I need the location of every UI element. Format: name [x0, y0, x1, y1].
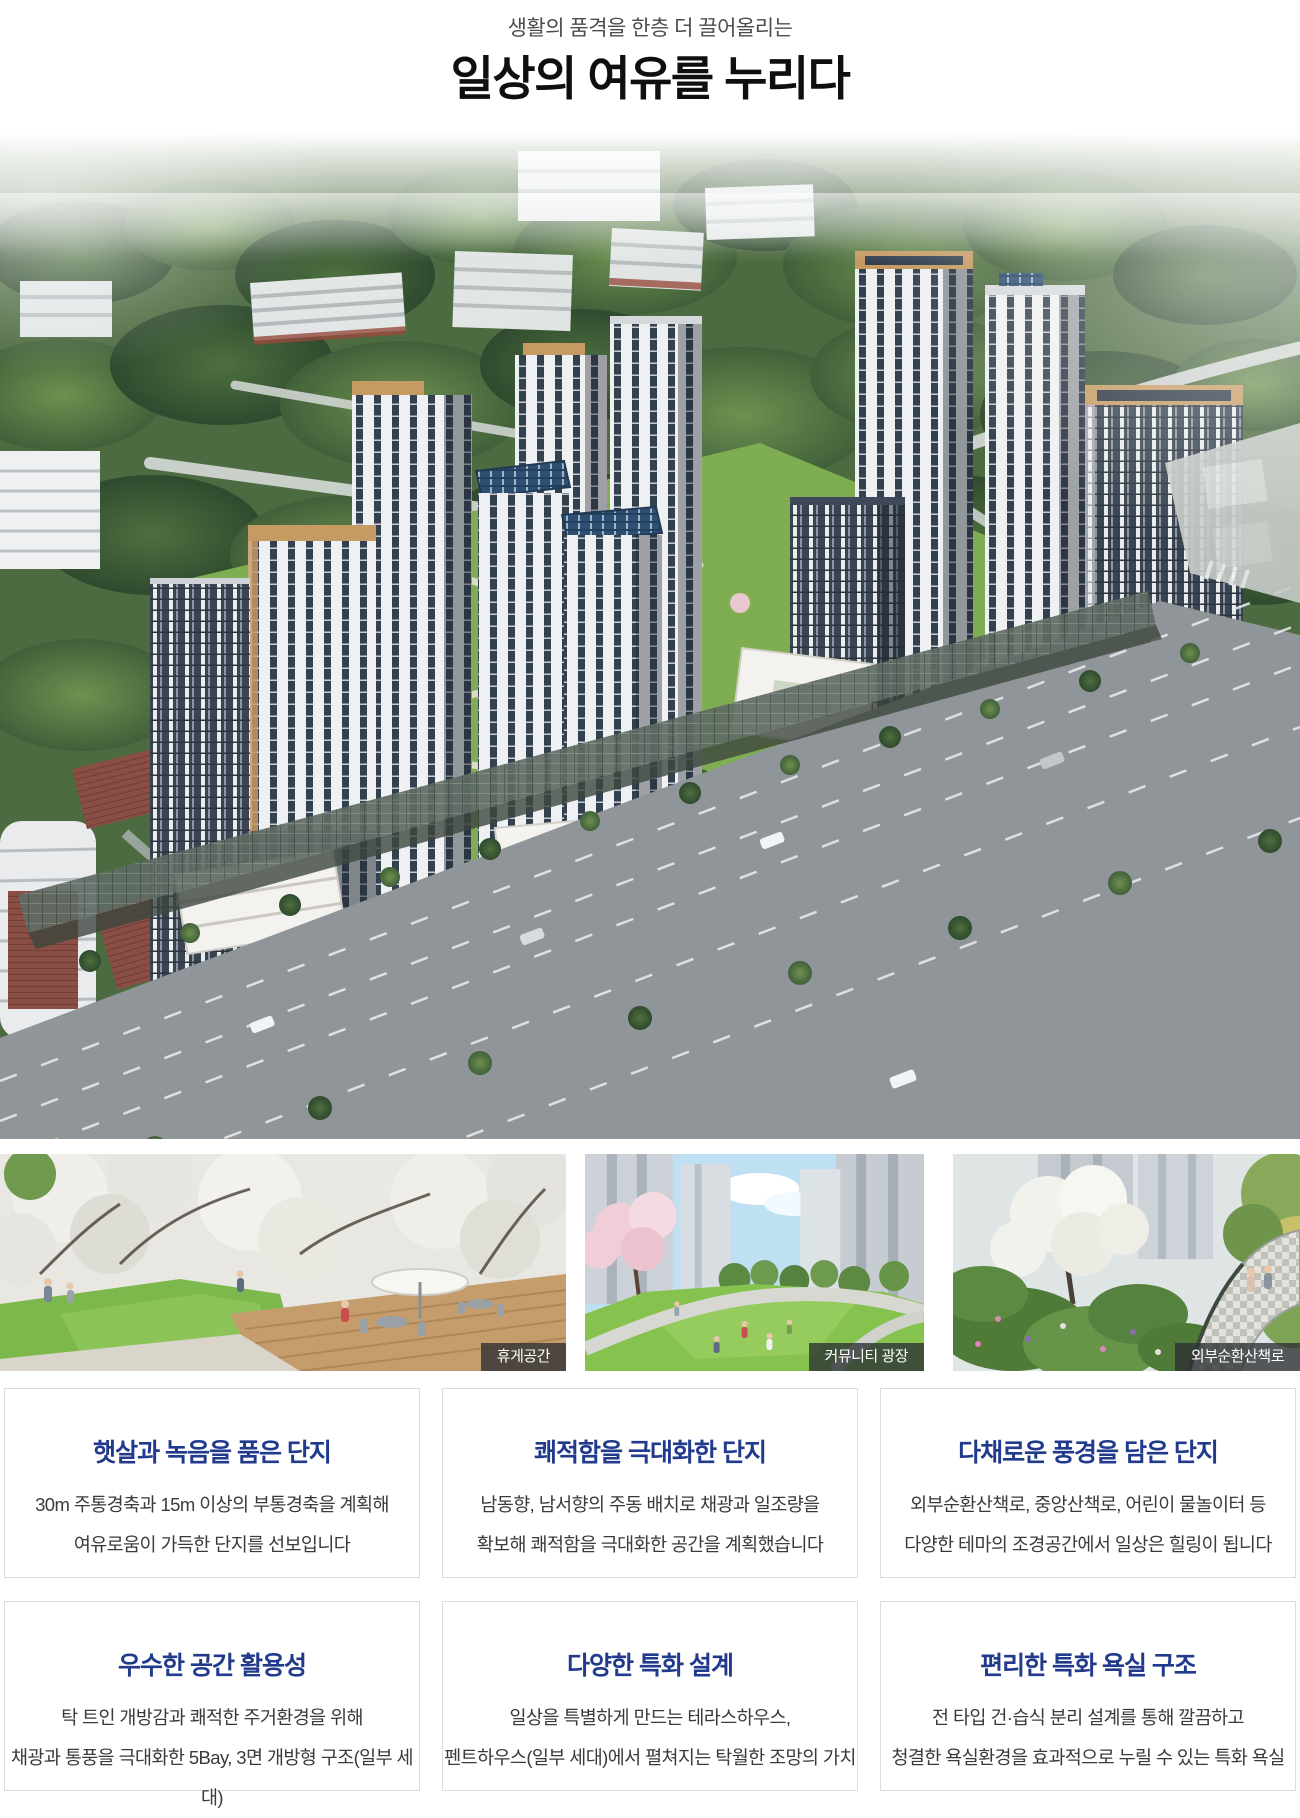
- feature-card-bathroom: 편리한 특화 욕실 구조 전 타입 건·습식 분리 설계를 통해 깔끔하고 청결…: [880, 1601, 1296, 1791]
- card-body-line: 외부순환산책로, 중앙산책로, 어린이 물놀이터 등: [881, 1485, 1295, 1525]
- card-body-line: 전 타입 건·습식 분리 설계를 통해 깔끔하고: [881, 1698, 1295, 1738]
- card-title: 햇살과 녹음을 품은 단지: [5, 1433, 419, 1469]
- card-body-line: 여유로움이 가득한 단지를 선보입니다: [5, 1525, 419, 1565]
- complex-aerial-view-image: [0, 133, 1300, 1139]
- card-title: 편리한 특화 욕실 구조: [881, 1646, 1295, 1682]
- thumbnail-label-badge: 커뮤니티 광장: [809, 1343, 924, 1371]
- card-body-line: 확보해 쾌적함을 극대화한 공간을 계획했습니다: [443, 1525, 857, 1565]
- thumbnail-label-badge: 외부순환산책로: [1175, 1343, 1300, 1371]
- feature-card-design: 다양한 특화 설계 일상을 특별하게 만드는 테라스하우스, 펜트하우스(일부 …: [442, 1601, 858, 1791]
- outer-trail-graphic: [953, 1154, 1300, 1371]
- thumbnail-rest-area: 휴게공간: [0, 1154, 566, 1371]
- card-body-line: 채광과 통풍을 극대화한 5Bay, 3면 개방형 구조(일부 세대): [5, 1738, 419, 1818]
- header-subtitle: 생활의 품격을 한층 더 끌어올리는: [0, 12, 1300, 42]
- page-header: 생활의 품격을 한층 더 끌어올리는 일상의 여유를 누리다: [0, 0, 1300, 133]
- promo-page: 생활의 품격을 한층 더 끌어올리는 일상의 여유를 누리다: [0, 0, 1300, 1791]
- thumbnail-community-plaza: 커뮤니티 광장: [585, 1154, 924, 1371]
- thumbnail-outer-trail: 외부순환산책로: [953, 1154, 1300, 1371]
- thumbnail-label-badge: 휴게공간: [481, 1343, 566, 1371]
- feature-card-sunlight: 햇살과 녹음을 품은 단지 30m 주통경축과 15m 이상의 부통경축을 계획…: [4, 1388, 420, 1578]
- feature-card-scenery: 다채로운 풍경을 담은 단지 외부순환산책로, 중앙산책로, 어린이 물놀이터 …: [880, 1388, 1296, 1578]
- aerial-render-graphic: [0, 133, 1300, 1139]
- card-body-line: 펜트하우스(일부 세대)에서 펼쳐지는 탁월한 조망의 가치: [443, 1738, 857, 1778]
- page-title: 일상의 여유를 누리다: [0, 52, 1300, 106]
- card-title: 우수한 공간 활용성: [5, 1646, 419, 1682]
- card-body-line: 남동향, 남서향의 주동 배치로 채광과 일조량을: [443, 1485, 857, 1525]
- card-body-line: 청결한 욕실환경을 효과적으로 누릴 수 있는 특화 욕실: [881, 1738, 1295, 1778]
- feature-card-space: 우수한 공간 활용성 탁 트인 개방감과 쾌적한 주거환경을 위해 채광과 통풍…: [4, 1601, 420, 1791]
- rest-area-graphic: [0, 1154, 566, 1371]
- card-title: 다채로운 풍경을 담은 단지: [881, 1433, 1295, 1469]
- card-body-line: 30m 주통경축과 15m 이상의 부통경축을 계획해: [5, 1485, 419, 1525]
- community-plaza-graphic: [585, 1154, 924, 1371]
- card-title: 다양한 특화 설계: [443, 1646, 857, 1682]
- feature-card-grid: 햇살과 녹음을 품은 단지 30m 주통경축과 15m 이상의 부통경축을 계획…: [0, 1388, 1300, 1791]
- card-body-line: 다양한 테마의 조경공간에서 일상은 힐링이 됩니다: [881, 1525, 1295, 1565]
- thumbnail-row: 휴게공간: [0, 1154, 1300, 1371]
- feature-card-comfort: 쾌적함을 극대화한 단지 남동향, 남서향의 주동 배치로 채광과 일조량을 확…: [442, 1388, 858, 1578]
- card-body-line: 탁 트인 개방감과 쾌적한 주거환경을 위해: [5, 1698, 419, 1738]
- card-body-line: 일상을 특별하게 만드는 테라스하우스,: [443, 1698, 857, 1738]
- card-title: 쾌적함을 극대화한 단지: [443, 1433, 857, 1469]
